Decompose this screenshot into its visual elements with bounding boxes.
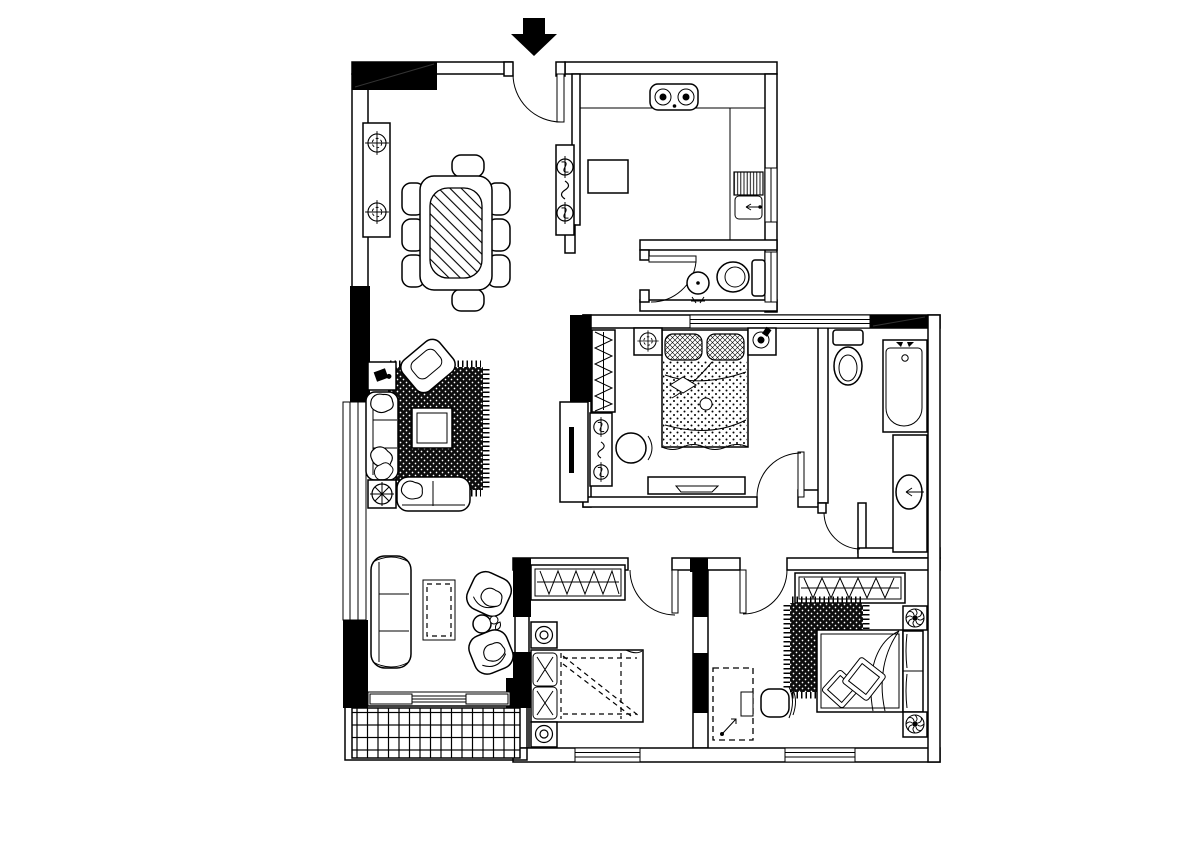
cooktop [650, 84, 698, 110]
dining-chair [452, 155, 484, 177]
pillow [707, 334, 744, 360]
master-door [757, 452, 804, 497]
nightstand-fan-top [903, 606, 927, 630]
wall-segment [565, 62, 777, 74]
window-bedroom-top [690, 315, 870, 328]
wall-segment [858, 503, 866, 553]
double-bed [662, 330, 748, 450]
tv-cabinet [560, 402, 588, 502]
bedroom3-door [740, 570, 787, 614]
nightstand-fan-bottom [903, 712, 927, 737]
glass-top [430, 188, 482, 278]
ensuite-toilet [833, 330, 863, 385]
dining-table [420, 176, 492, 290]
cup-icon [490, 616, 498, 624]
pillow [371, 394, 394, 412]
curved-sofa [371, 556, 411, 668]
bedroom2-door [630, 570, 678, 615]
wall-segment [640, 250, 649, 260]
wall-segment [640, 290, 649, 302]
nightstand-left [634, 328, 662, 355]
wall-segment [583, 497, 757, 507]
bedroom2-wardrobe [531, 565, 625, 600]
living-room [366, 335, 588, 511]
lounge-chair [465, 626, 517, 678]
headboard [903, 631, 923, 712]
pier [350, 286, 370, 402]
toilet-tank [833, 330, 863, 345]
utility-cabinet [556, 145, 574, 235]
side-table-top [368, 362, 396, 390]
door-swing-arc [513, 74, 561, 122]
drainboard [734, 172, 763, 195]
side-table-bottom [368, 480, 396, 508]
tile-floor [352, 708, 520, 758]
toilet [717, 260, 765, 296]
fan-lamp-icon [906, 609, 924, 627]
fan-lamp-icon [906, 715, 924, 733]
hall-bathroom [649, 256, 765, 303]
bathtub [883, 340, 927, 432]
toilet-bowl [834, 347, 862, 385]
window-kitchen-right [765, 168, 777, 222]
master-bedroom [590, 324, 804, 497]
ensuite-door [824, 513, 860, 549]
tv-stand [648, 477, 745, 494]
tub-basin [886, 348, 922, 426]
window-living-left [343, 402, 366, 620]
pillow [665, 334, 702, 360]
wall-segment [640, 300, 777, 311]
kitchen-sink [734, 172, 763, 219]
pier [343, 678, 368, 708]
desk-hutch [741, 692, 753, 716]
round-side-table [473, 615, 501, 633]
kitchen [556, 84, 765, 240]
pier [570, 315, 591, 402]
vanity [893, 435, 927, 552]
toilet-bowl [717, 262, 749, 292]
door-swing-arc [743, 570, 787, 614]
window-bedroom3-bottom [785, 748, 855, 762]
entry-door [513, 74, 564, 122]
master-wardrobe [592, 330, 615, 412]
wall-segment [928, 315, 940, 762]
bedroom-3 [713, 570, 927, 740]
dining-room [363, 123, 510, 311]
tv-icon [676, 486, 718, 492]
stool [616, 433, 652, 463]
round-basin [687, 272, 709, 303]
wall-segment [640, 240, 777, 250]
door-leaf [649, 256, 696, 262]
sideboard [363, 123, 390, 237]
bedroom3-bed [817, 630, 923, 712]
sill [370, 694, 412, 704]
rug-dashed [423, 580, 455, 640]
nightstand-right [748, 324, 776, 355]
single-bed [531, 650, 643, 722]
lamp-icon [536, 627, 553, 644]
wall-segment [818, 503, 826, 513]
door-leaf [798, 452, 804, 497]
window-bathroom-right [765, 252, 777, 302]
nightstand-lamp-bottom [531, 722, 557, 747]
door-swing-arc [824, 513, 860, 549]
sill [466, 694, 508, 704]
balcony [345, 706, 527, 760]
desk [713, 668, 753, 740]
entry-arrow-icon [511, 18, 557, 56]
lounge-chair [462, 567, 515, 620]
door-leaf [672, 570, 678, 613]
dresser [590, 413, 612, 486]
wall-segment [787, 558, 940, 570]
refrigerator [588, 160, 628, 193]
bedroom-2 [531, 565, 678, 747]
nightstand-lamp-top [531, 622, 557, 648]
floor-plan-canvas: Apartment Floor Plan [0, 0, 1200, 848]
dining-chair [452, 289, 484, 311]
sitting-area [368, 556, 517, 706]
sofa-3-seat [366, 392, 398, 483]
door-jamb [504, 62, 513, 76]
tv-icon [569, 427, 574, 473]
door-swing-arc [757, 453, 801, 497]
pier [693, 653, 708, 713]
lamp-icon [536, 726, 553, 743]
window-bedroom2-bottom [575, 748, 640, 762]
door-swing-arc [630, 570, 675, 615]
loveseat [397, 477, 470, 511]
pier [513, 558, 531, 617]
toilet-tank [752, 260, 765, 296]
ensuite-bathroom [824, 330, 927, 552]
sliding-door [368, 692, 510, 706]
wall-segment [818, 328, 828, 503]
floor-plan-drawing: Apartment Floor Plan [0, 0, 1200, 848]
door-leaf [557, 74, 564, 122]
pier [693, 558, 708, 617]
door-leaf [740, 570, 746, 613]
coffee-table [412, 408, 452, 448]
